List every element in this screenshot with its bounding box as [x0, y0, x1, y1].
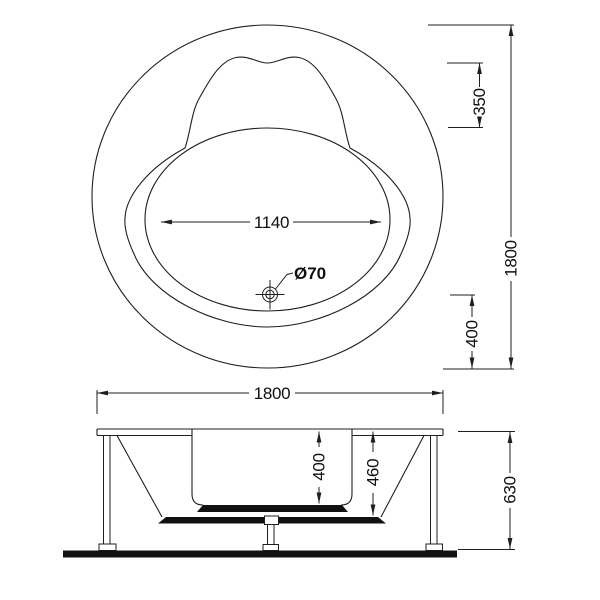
leg-foot: [426, 544, 443, 551]
dim-drain-offset: 400: [450, 295, 482, 369]
basin-bottom-bar: [197, 505, 348, 512]
shell-slant-right: [381, 436, 424, 518]
dim-label-overall-diameter: 1800: [502, 240, 521, 277]
dim-overall-width: 1800: [97, 384, 443, 414]
tub-rim: [97, 429, 443, 436]
bathtub-technical-drawing: Ø70 1140 350 1800 400: [0, 0, 600, 600]
dim-label-shell-depth: 460: [364, 459, 383, 486]
dim-label-inner-diameter: 1140: [254, 213, 289, 232]
dim-label-basin-depth: 400: [310, 453, 329, 480]
dim-label-overall-width: 1800: [254, 384, 291, 403]
side-view: 1800: [63, 384, 520, 558]
dim-backrest-depth: 350: [447, 63, 489, 128]
center-leg-plate: [265, 516, 279, 525]
drain-leader-line: [276, 273, 294, 289]
leg-foot: [99, 544, 116, 551]
dim-label-drain-offset: 400: [463, 320, 482, 347]
floor-line: [63, 551, 457, 558]
dim-label-backrest-depth: 350: [470, 88, 489, 115]
tub-inner-rim-contour: [125, 57, 410, 327]
right-leg: [426, 436, 443, 551]
dim-label-drain-diameter: Ø70: [294, 264, 326, 283]
basin-wall-right: [341, 430, 352, 506]
dim-basin-depth: 400: [310, 432, 329, 504]
dim-overall-diameter: 1800: [428, 25, 521, 369]
left-leg: [99, 436, 116, 551]
dim-total-height: 630: [458, 432, 520, 550]
dim-shell-depth: 460: [364, 432, 383, 516]
dim-inner-diameter: 1140: [161, 213, 381, 232]
center-leg: [263, 525, 279, 551]
tub-outer-rim-circle: [92, 25, 443, 368]
drain-symbol: Ø70: [256, 264, 327, 310]
shell-slant-left: [117, 436, 162, 518]
dim-label-total-height: 630: [501, 476, 520, 503]
top-view: Ø70 1140 350 1800 400: [92, 25, 521, 369]
basin-wall-left: [192, 430, 203, 506]
drawing-canvas: Ø70 1140 350 1800 400: [0, 0, 600, 600]
leg-foot: [263, 545, 279, 551]
